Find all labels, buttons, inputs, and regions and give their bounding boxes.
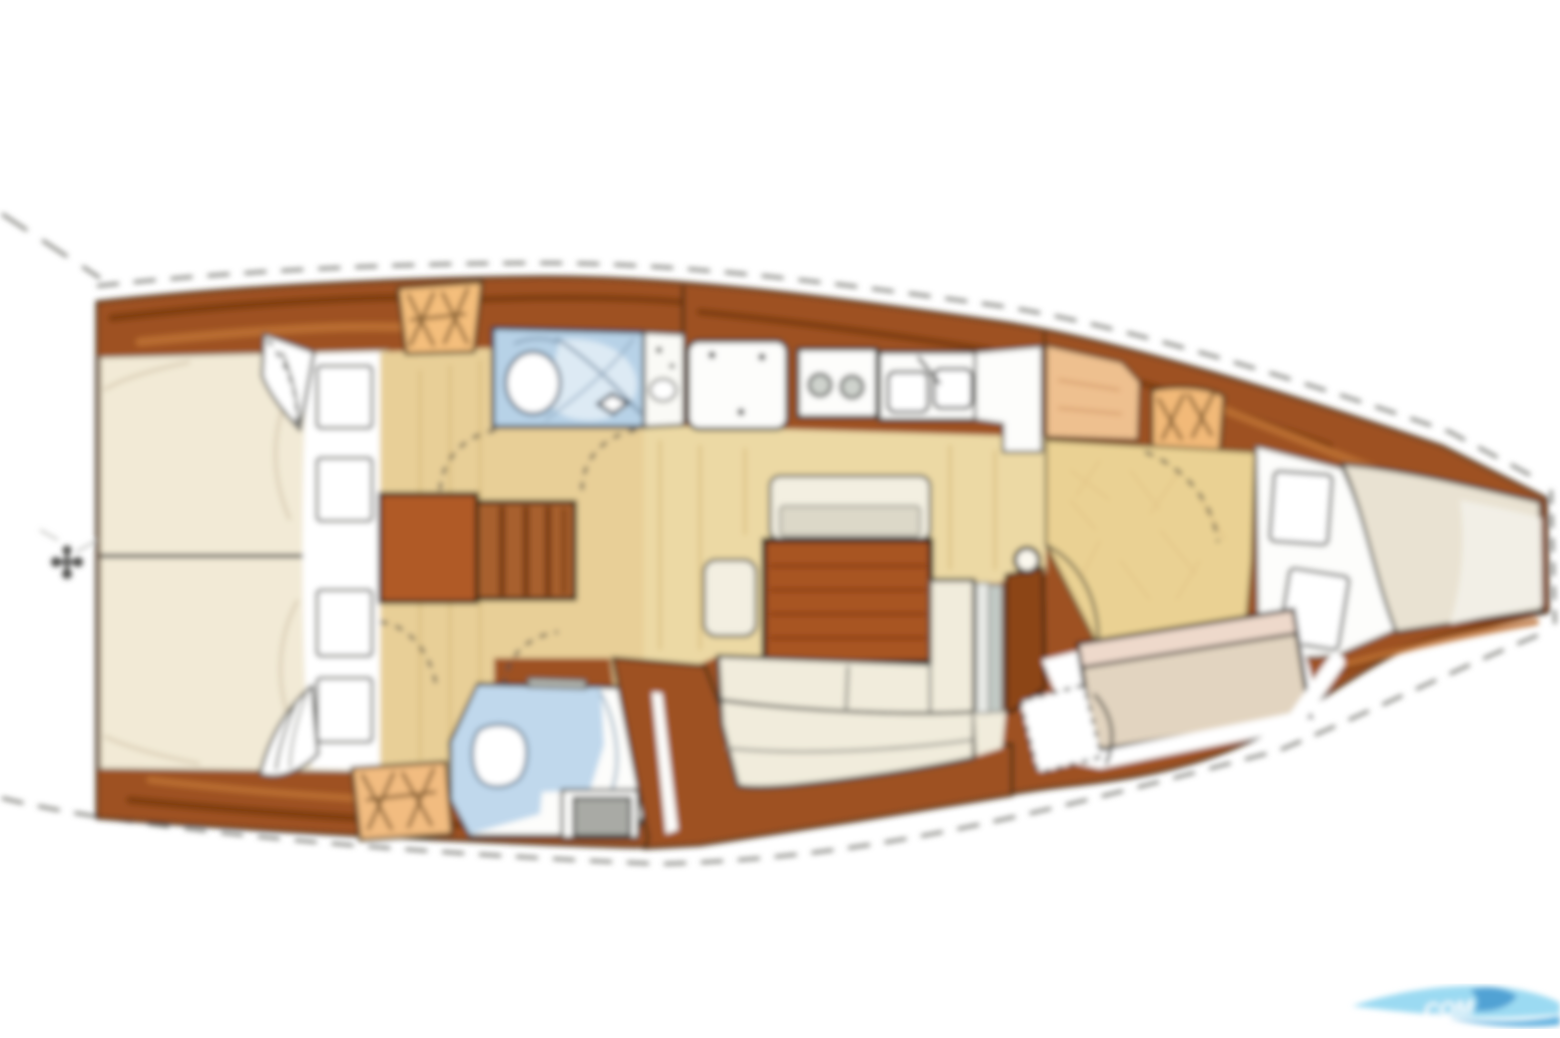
svg-text:COM: COM	[1423, 996, 1474, 1022]
